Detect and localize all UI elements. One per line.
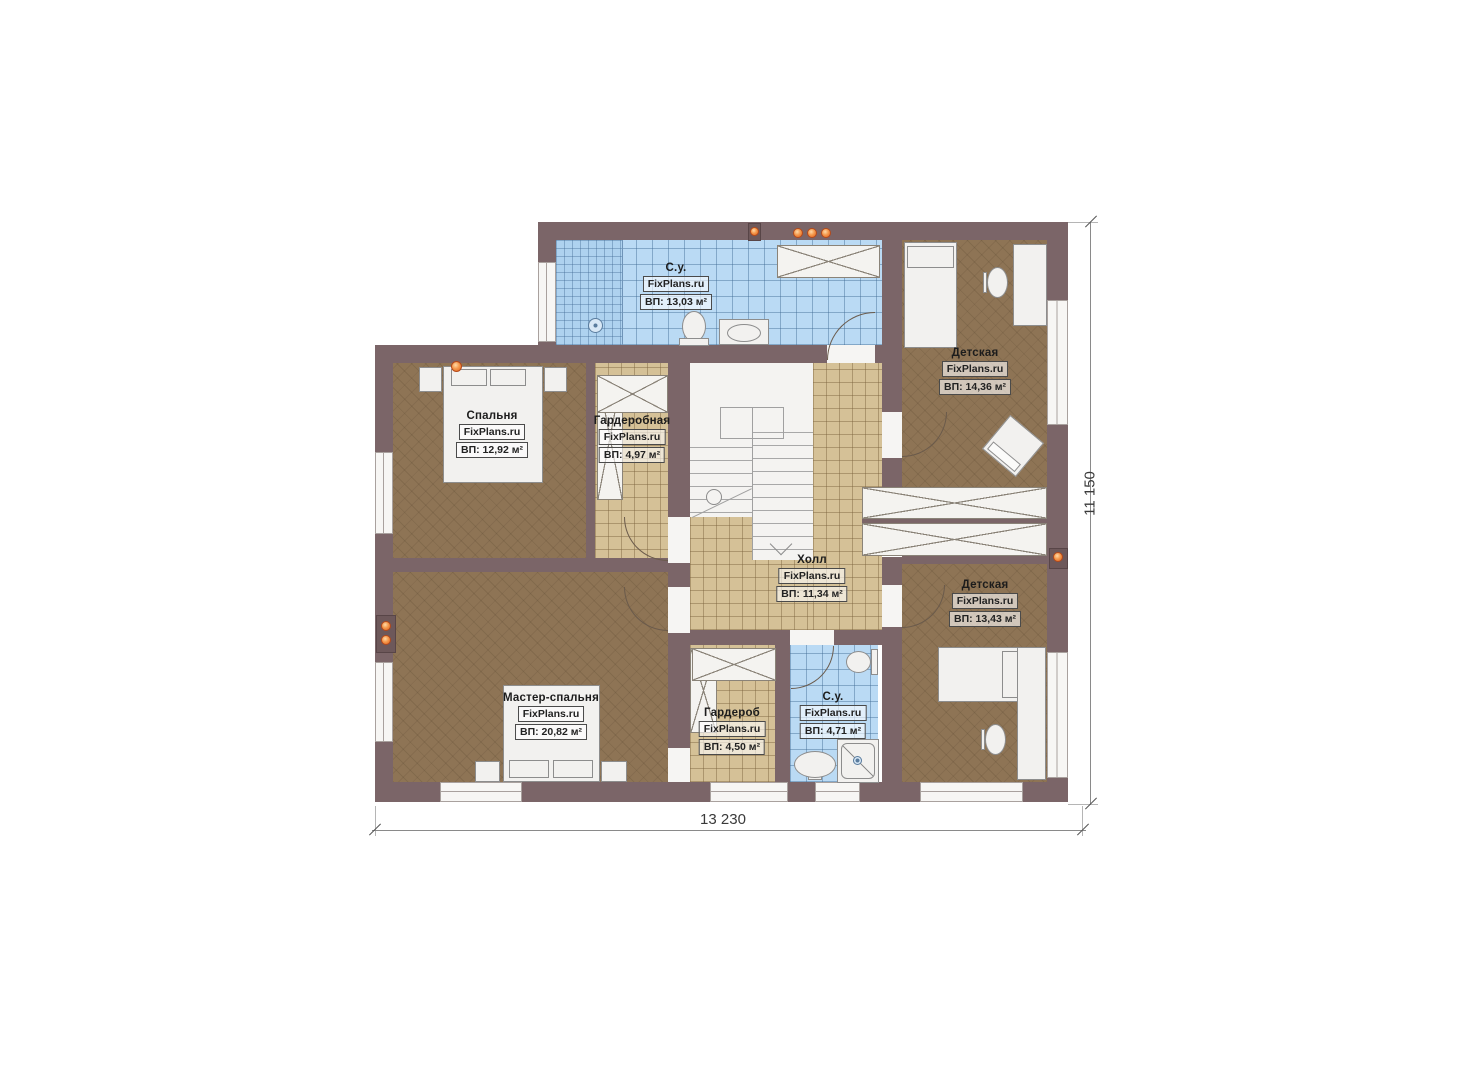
stair-stringer-line bbox=[752, 407, 753, 560]
room-label-master-bedroom: Мастер-спальня FixPlans.ru ВП: 20,82 м² bbox=[503, 692, 599, 740]
dim-extension-right-top bbox=[1068, 222, 1098, 223]
closet-symbol-right-2 bbox=[862, 523, 1047, 556]
room-area: ВП: 4,50 м² bbox=[699, 739, 765, 755]
room-brand: FixPlans.ru bbox=[942, 361, 1009, 377]
room-label-nursery-top: Детская FixPlans.ru ВП: 14,36 м² bbox=[939, 347, 1011, 395]
room-area: ВП: 13,03 м² bbox=[640, 294, 712, 310]
window-master bbox=[375, 662, 393, 742]
stair-newel-circle bbox=[706, 489, 722, 505]
vent-dot-icon bbox=[381, 635, 391, 645]
closet-symbol-wardrobe-top bbox=[692, 648, 776, 681]
door-gap-nursery-bottom bbox=[882, 585, 902, 627]
wall-center-c bbox=[668, 633, 690, 748]
window-bottom-nursery bbox=[920, 782, 1023, 802]
room-label-wardrobe: Гардероб FixPlans.ru ВП: 4,50 м² bbox=[699, 707, 766, 755]
dimension-line-width bbox=[372, 830, 1086, 831]
toilet-tank-symbol-2 bbox=[871, 649, 878, 675]
desk-symbol-nursery-bottom bbox=[1017, 647, 1046, 780]
window-bottom-master bbox=[440, 782, 522, 802]
sink-basin-symbol bbox=[727, 324, 761, 342]
dimension-label-height: 11 150 bbox=[1082, 459, 1099, 529]
wall-right-rooms-west-c bbox=[882, 557, 902, 585]
door-gap-nursery-top bbox=[882, 412, 902, 458]
nightstand-symbol-right bbox=[544, 367, 567, 392]
vent-dot-icon bbox=[381, 621, 391, 631]
room-name: Гардеробная bbox=[594, 415, 671, 427]
door-gap-bathroom-bottom bbox=[790, 630, 834, 645]
pillow-symbol-5 bbox=[509, 760, 549, 778]
wall-right-rooms-west-a bbox=[882, 240, 902, 412]
room-area: ВП: 12,92 м² bbox=[456, 442, 528, 458]
pillow-symbol-6 bbox=[553, 760, 593, 778]
closet-symbol-right-1 bbox=[862, 487, 1047, 519]
room-label-nursery-bottom: Детская FixPlans.ru ВП: 13,43 м² bbox=[949, 579, 1021, 627]
sink-basin-symbol-2 bbox=[794, 751, 836, 778]
wall-top bbox=[538, 222, 1068, 240]
pillow-symbol-4 bbox=[490, 369, 526, 386]
wall-wardrobe-bath bbox=[775, 645, 790, 782]
room-brand: FixPlans.ru bbox=[800, 705, 867, 721]
chair-back-symbol bbox=[983, 272, 987, 293]
dim-extension-right-bottom bbox=[1068, 804, 1098, 805]
room-name: Холл bbox=[797, 554, 827, 566]
room-name: С.у. bbox=[666, 262, 687, 274]
vent-dot-icon bbox=[807, 228, 817, 238]
desk-symbol-nursery-top bbox=[1013, 244, 1047, 326]
door-gap-wardrobe-room bbox=[668, 517, 690, 563]
wall-right-rooms-west-b bbox=[882, 458, 902, 487]
wall-center-b bbox=[668, 563, 690, 587]
wall-nursery-divider bbox=[902, 556, 1047, 564]
dim-extension-bottom-left bbox=[375, 806, 376, 836]
toilet-bowl-symbol-2 bbox=[846, 651, 871, 673]
door-gap-master bbox=[668, 587, 690, 633]
room-area: ВП: 11,34 м² bbox=[776, 586, 847, 602]
room-label-wardrobe-room: Гардеробная FixPlans.ru ВП: 4,97 м² bbox=[594, 415, 671, 463]
room-brand: FixPlans.ru bbox=[599, 429, 666, 445]
room-brand: FixPlans.ru bbox=[699, 721, 766, 737]
nightstand-symbol-left bbox=[419, 367, 442, 392]
shower-drain-icon bbox=[588, 318, 603, 333]
room-brand: FixPlans.ru bbox=[459, 424, 526, 440]
wall-center-a bbox=[668, 363, 690, 517]
window-right-nursery-bottom bbox=[1047, 652, 1068, 778]
room-label-hall: Холл FixPlans.ru ВП: 11,34 м² bbox=[776, 554, 847, 602]
window-bottom-bath bbox=[815, 782, 860, 802]
vent-dot-icon bbox=[451, 361, 462, 372]
window-bedroom bbox=[375, 452, 393, 534]
vent-dot-icon bbox=[1053, 552, 1063, 562]
room-area: ВП: 4,97 м² bbox=[599, 447, 665, 463]
shower-drain-icon-2 bbox=[853, 756, 862, 765]
chair-symbol-nursery-bottom bbox=[985, 724, 1006, 755]
wall-bedroom-closet bbox=[586, 363, 595, 572]
room-name: Гардероб bbox=[704, 707, 760, 719]
toilet-tank-symbol bbox=[679, 338, 709, 346]
room-label-bathroom-bottom: С.у. FixPlans.ru ВП: 4,71 м² bbox=[800, 691, 867, 739]
room-area: ВП: 4,71 м² bbox=[800, 723, 866, 739]
vent-dot-icon bbox=[821, 228, 831, 238]
room-name: Детская bbox=[952, 347, 999, 359]
room-name: С.у. bbox=[823, 691, 844, 703]
closet-symbol-bathroom bbox=[777, 245, 880, 278]
nightstand-symbol-master-left bbox=[475, 761, 500, 782]
room-area: ВП: 14,36 м² bbox=[939, 379, 1011, 395]
room-name: Детская bbox=[962, 579, 1009, 591]
room-brand: FixPlans.ru bbox=[643, 276, 710, 292]
wall-hall-south-b bbox=[834, 630, 895, 645]
closet-symbol-walkin-top bbox=[597, 375, 668, 413]
window-bottom-wardrobe bbox=[710, 782, 788, 802]
room-brand: FixPlans.ru bbox=[952, 593, 1019, 609]
room-name: Спальня bbox=[466, 410, 517, 422]
chair-back-symbol-2 bbox=[981, 729, 985, 750]
dimension-label-width: 13 230 bbox=[673, 811, 773, 828]
pillow-symbol bbox=[907, 246, 954, 268]
vent-dot-icon bbox=[750, 227, 759, 236]
room-name: Мастер-спальня bbox=[503, 692, 599, 704]
room-brand: FixPlans.ru bbox=[518, 706, 585, 722]
dim-extension-bottom-right bbox=[1082, 806, 1083, 836]
room-area: ВП: 13,43 м² bbox=[949, 611, 1021, 627]
room-label-bedroom: Спальня FixPlans.ru ВП: 12,92 м² bbox=[456, 410, 528, 458]
window-right-nursery-top bbox=[1047, 300, 1068, 425]
window-bathroom-top bbox=[538, 262, 556, 342]
room-brand: FixPlans.ru bbox=[779, 568, 846, 584]
wall-right-rooms-west-d bbox=[882, 627, 902, 782]
vent-dot-icon bbox=[793, 228, 803, 238]
wall-mid-horizontal bbox=[375, 345, 827, 363]
nightstand-symbol-master-right bbox=[601, 761, 627, 782]
room-area: ВП: 20,82 м² bbox=[515, 724, 587, 740]
room-label-bathroom-top: С.у. FixPlans.ru ВП: 13,03 м² bbox=[640, 262, 712, 310]
floor-plan-canvas: С.у. FixPlans.ru ВП: 13,03 м² Детская Fi… bbox=[0, 0, 1474, 1080]
chair-symbol-nursery-top bbox=[987, 267, 1008, 298]
door-gap-master-wardrobe bbox=[668, 748, 690, 782]
wall-bedroom-master bbox=[393, 558, 668, 572]
